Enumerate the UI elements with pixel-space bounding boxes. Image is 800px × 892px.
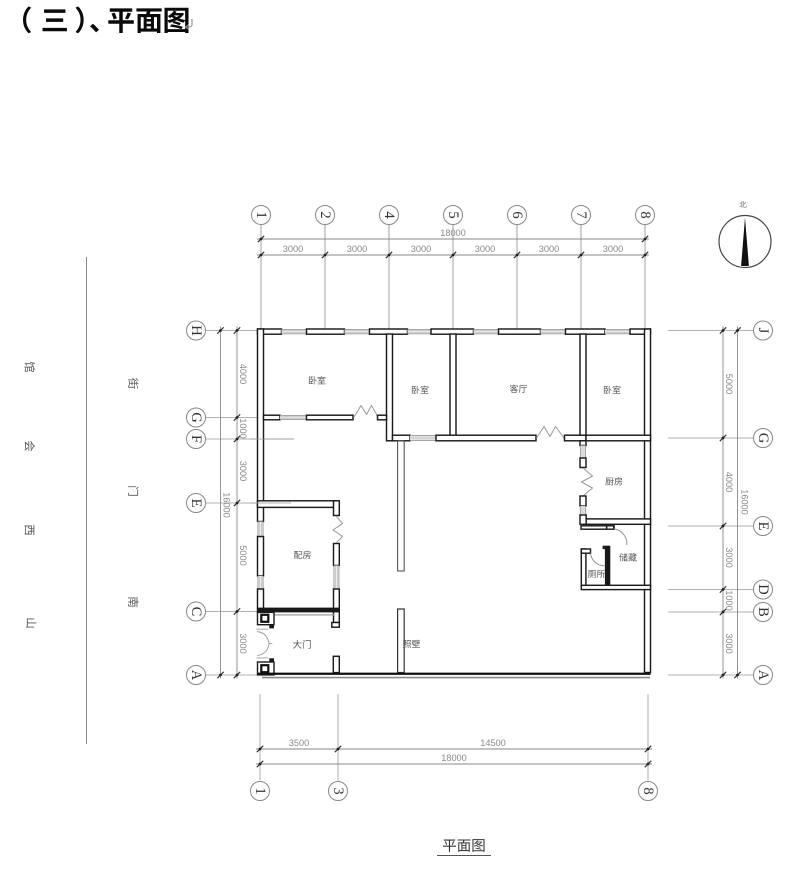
svg-text:5000: 5000 [238,545,248,565]
svg-text:4000: 4000 [238,364,248,384]
svg-text:3000: 3000 [347,244,367,254]
svg-text:16000: 16000 [221,492,231,518]
svg-text:14500: 14500 [480,738,506,748]
svg-text:2: 2 [317,211,333,218]
svg-text:J: J [755,328,771,334]
svg-text:3000: 3000 [724,547,734,567]
svg-text:8: 8 [637,211,653,218]
svg-text:5000: 5000 [724,374,734,394]
svg-text:3000: 3000 [724,633,734,653]
svg-text:A: A [188,670,204,681]
svg-text:6: 6 [509,211,525,218]
svg-text:3000: 3000 [238,461,248,481]
svg-text:16000: 16000 [739,489,749,515]
svg-text:D: D [755,584,771,594]
svg-text:F: F [188,435,204,443]
svg-text:5: 5 [445,211,461,218]
svg-text:3000: 3000 [283,244,303,254]
svg-text:E: E [188,499,204,508]
svg-text:H: H [188,325,204,336]
svg-text:G: G [188,412,204,423]
svg-text:1: 1 [252,787,268,794]
svg-text:1: 1 [253,211,269,218]
svg-text:3500: 3500 [289,738,309,748]
svg-text:3000: 3000 [411,244,431,254]
svg-text:3: 3 [330,787,346,794]
svg-text:E: E [755,522,771,531]
svg-text:B: B [755,607,771,617]
svg-text:4: 4 [381,211,397,219]
svg-text:3000: 3000 [238,633,248,653]
svg-text:G: G [755,433,771,444]
svg-text:7: 7 [573,211,589,218]
svg-text:1000: 1000 [238,418,248,438]
svg-text:C: C [188,607,204,617]
svg-text:3000: 3000 [603,244,623,254]
svg-text:18000: 18000 [440,228,466,238]
svg-text:18000: 18000 [441,753,467,763]
svg-text:3000: 3000 [539,244,559,254]
svg-text:4000: 4000 [724,472,734,492]
svg-text:A: A [755,670,771,681]
svg-text:1000: 1000 [724,590,734,610]
svg-text:8: 8 [640,787,656,794]
svg-text:3000: 3000 [475,244,495,254]
